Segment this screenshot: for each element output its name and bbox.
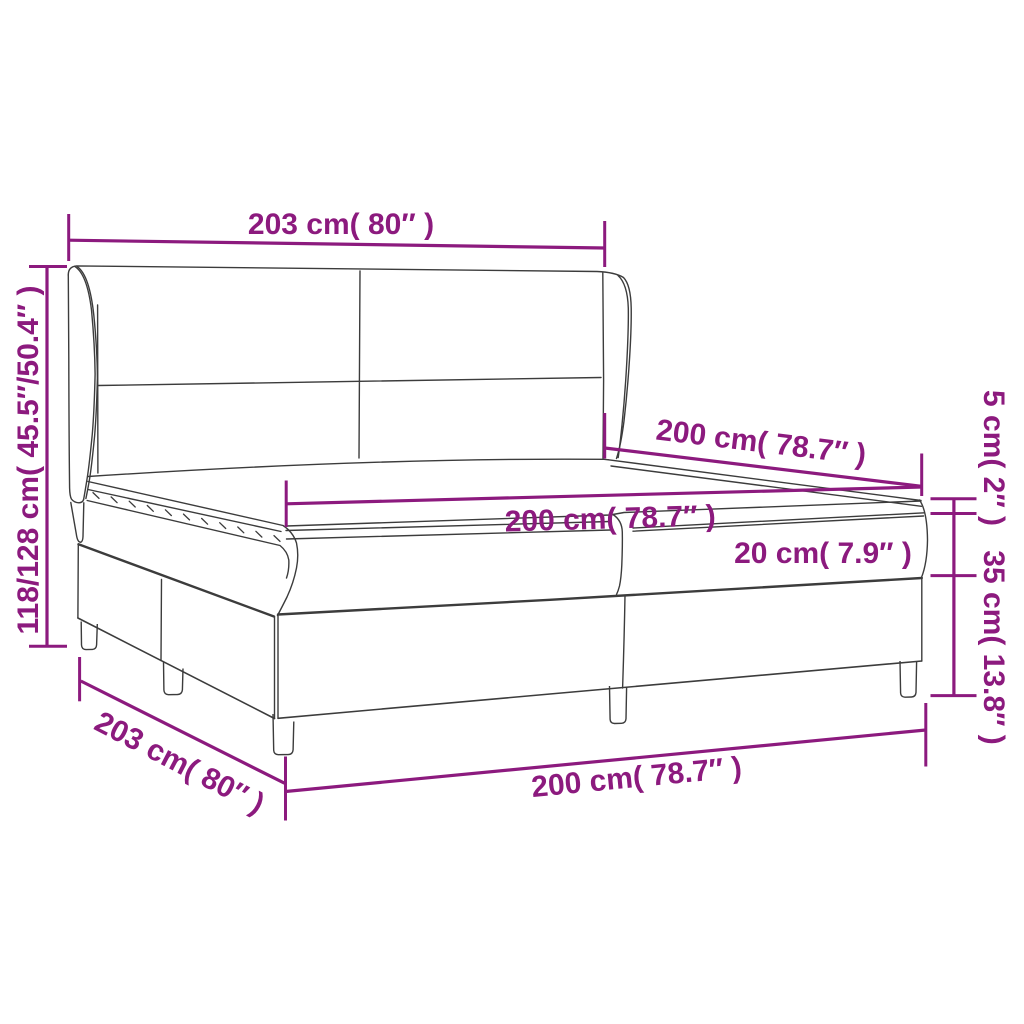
svg-text:5 cm( 2″ ): 5 cm( 2″ )	[977, 390, 1010, 526]
svg-text:203 cm( 80″ ): 203 cm( 80″ )	[248, 208, 434, 241]
svg-text:35 cm( 13.8″ ): 35 cm( 13.8″ )	[977, 550, 1010, 744]
svg-text:200 cm( 78.7″ ): 200 cm( 78.7″ )	[654, 414, 868, 472]
svg-text:118/128 cm( 45.5″/50.4″ ): 118/128 cm( 45.5″/50.4″ )	[12, 286, 45, 635]
svg-text:20 cm( 7.9″ ): 20 cm( 7.9″ )	[734, 537, 912, 570]
svg-text:200 cm( 78.7″ ): 200 cm( 78.7″ )	[504, 500, 716, 539]
